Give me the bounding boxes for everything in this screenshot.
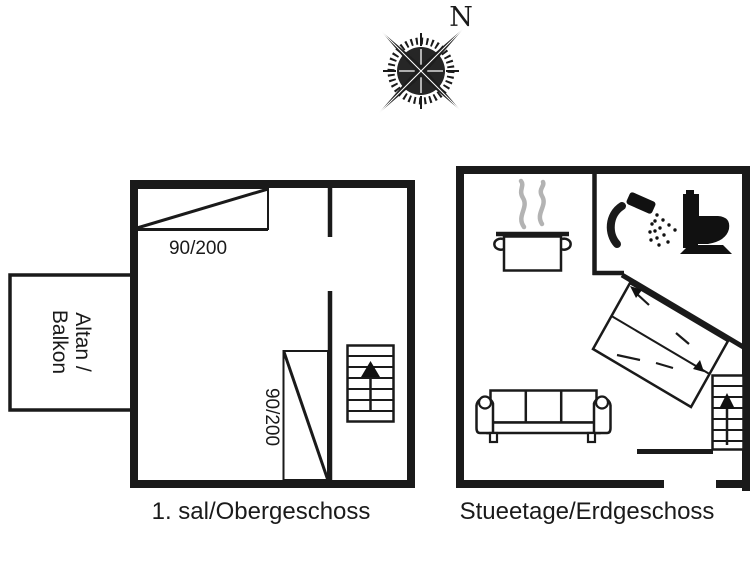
stairs-up-icon [348,346,394,422]
upper-floor-plan: Altan / Balkon 90/200 90/200 [10,184,411,484]
door-interior-size-label: 90/200 [261,388,282,446]
stairs-up-icon [713,376,744,450]
shower-icon [611,191,677,246]
cooking-pot-icon [494,234,570,271]
balcony-label-line1: Altan / [71,312,94,372]
compass-rose-icon [378,28,464,114]
double-bed-icon [593,283,728,407]
balcony-label-line2: Balkon [48,310,71,374]
floorplan-page: N Altan / Balkon 90/200 90/200 [0,0,755,566]
shower-spray-dots [648,213,676,246]
ground-floor-caption: Stueetage/Erdgeschoss [460,498,715,525]
compass-north-label: N [449,2,473,33]
toilet-icon [680,190,732,254]
sofa-icon [476,391,610,443]
upper-floor-caption: 1. sal/Obergeschoss [152,498,371,525]
ground-floor-plan [456,166,750,491]
door-top-size-label: 90/200 [169,238,227,259]
steam-icon [521,181,544,227]
